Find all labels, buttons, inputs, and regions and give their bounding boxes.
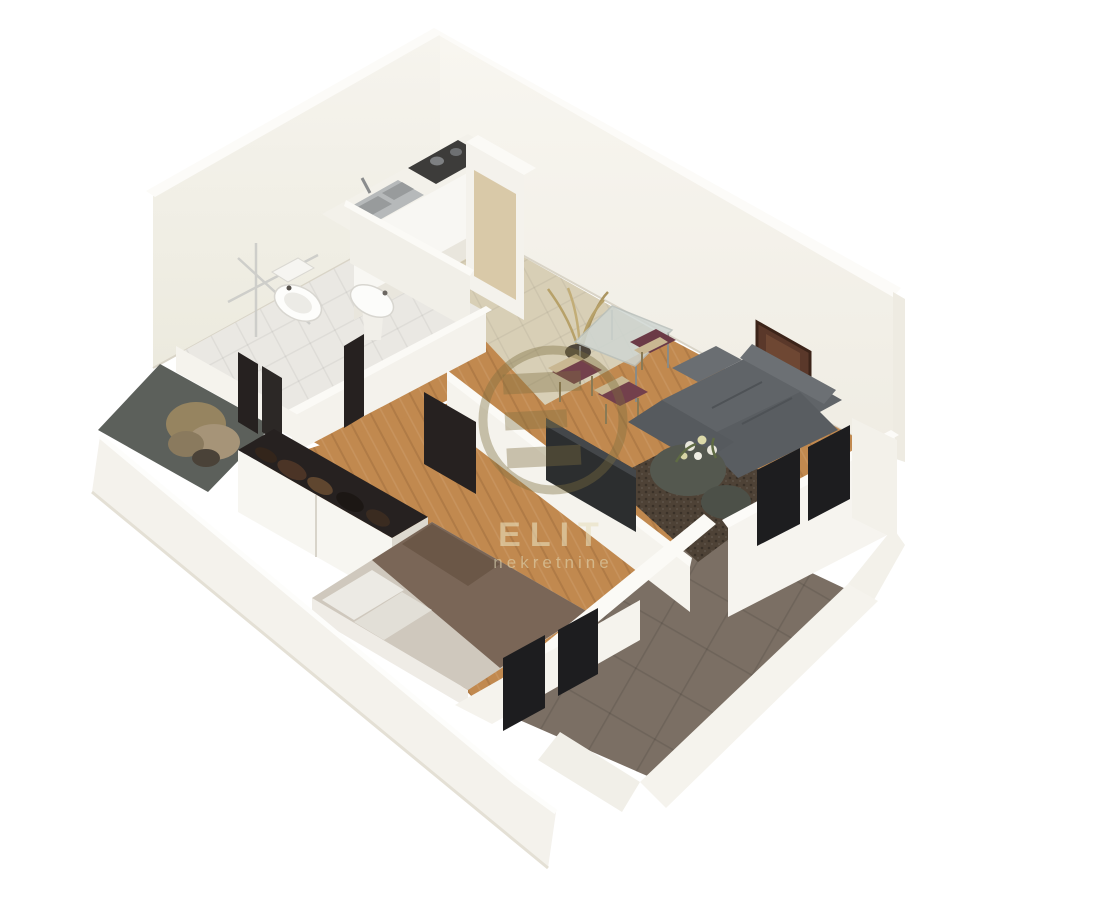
watermark-brand: ELIT	[498, 516, 608, 554]
pot	[430, 157, 444, 166]
watermark-subtitle: nekretnine	[493, 553, 612, 572]
bathroom-door	[344, 334, 364, 428]
apartment-3d-scene: ELIT nekretnine	[0, 0, 1098, 900]
pot	[450, 148, 462, 156]
floor-plan-render: ELIT nekretnine	[0, 0, 1098, 900]
loggia-door-panel	[238, 352, 258, 434]
